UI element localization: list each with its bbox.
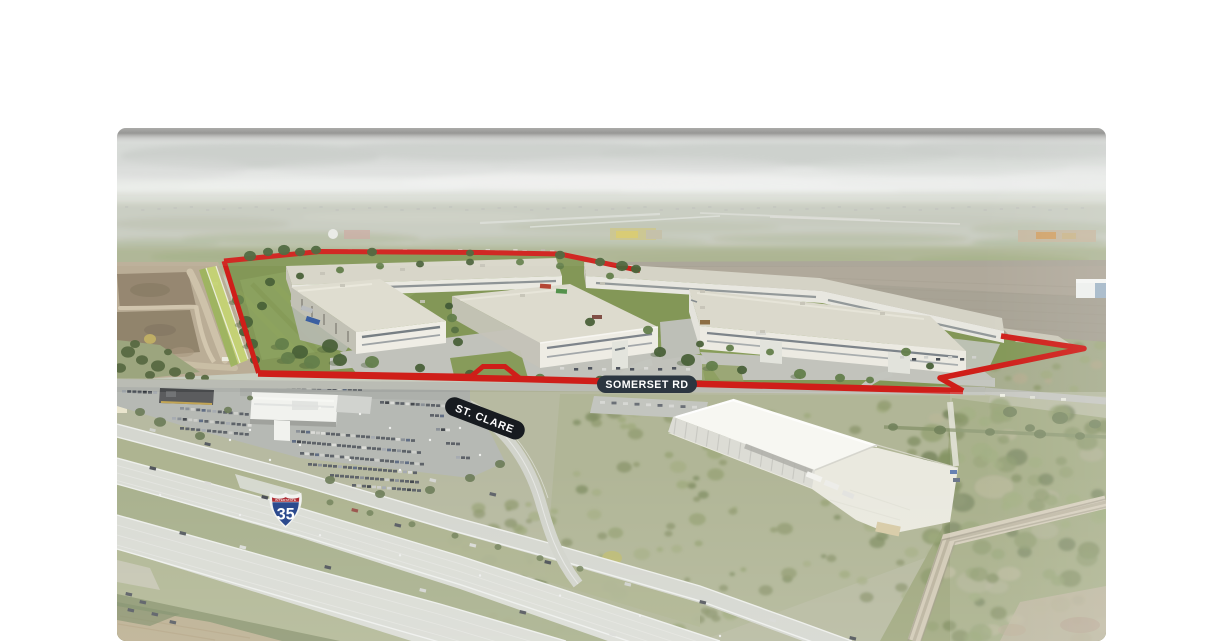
svg-text:SOMERSET RD: SOMERSET RD (605, 379, 688, 391)
svg-text:35: 35 (277, 505, 295, 523)
svg-text:INTERSTATE: INTERSTATE (275, 498, 297, 502)
